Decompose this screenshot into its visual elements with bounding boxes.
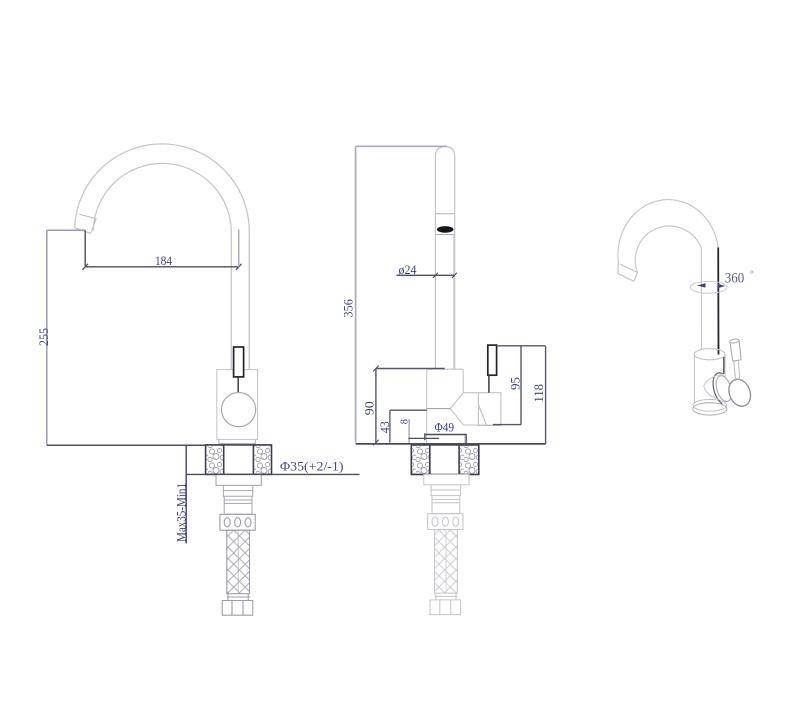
svg-text:°: ° bbox=[750, 269, 754, 281]
svg-text:184: 184 bbox=[155, 253, 172, 268]
svg-text:255: 255 bbox=[36, 328, 51, 346]
svg-text:356: 356 bbox=[341, 299, 356, 318]
svg-text:Φ49: Φ49 bbox=[435, 421, 455, 435]
svg-text:118: 118 bbox=[531, 384, 546, 403]
svg-text:Max35-Min1: Max35-Min1 bbox=[174, 483, 188, 542]
svg-text:360: 360 bbox=[725, 271, 745, 287]
svg-text:90: 90 bbox=[362, 401, 377, 415]
svg-text:Φ35(+2/-1): Φ35(+2/-1) bbox=[280, 460, 344, 474]
svg-text:8: 8 bbox=[399, 419, 410, 424]
svg-text:43: 43 bbox=[377, 421, 392, 433]
svg-text:95: 95 bbox=[507, 377, 522, 390]
